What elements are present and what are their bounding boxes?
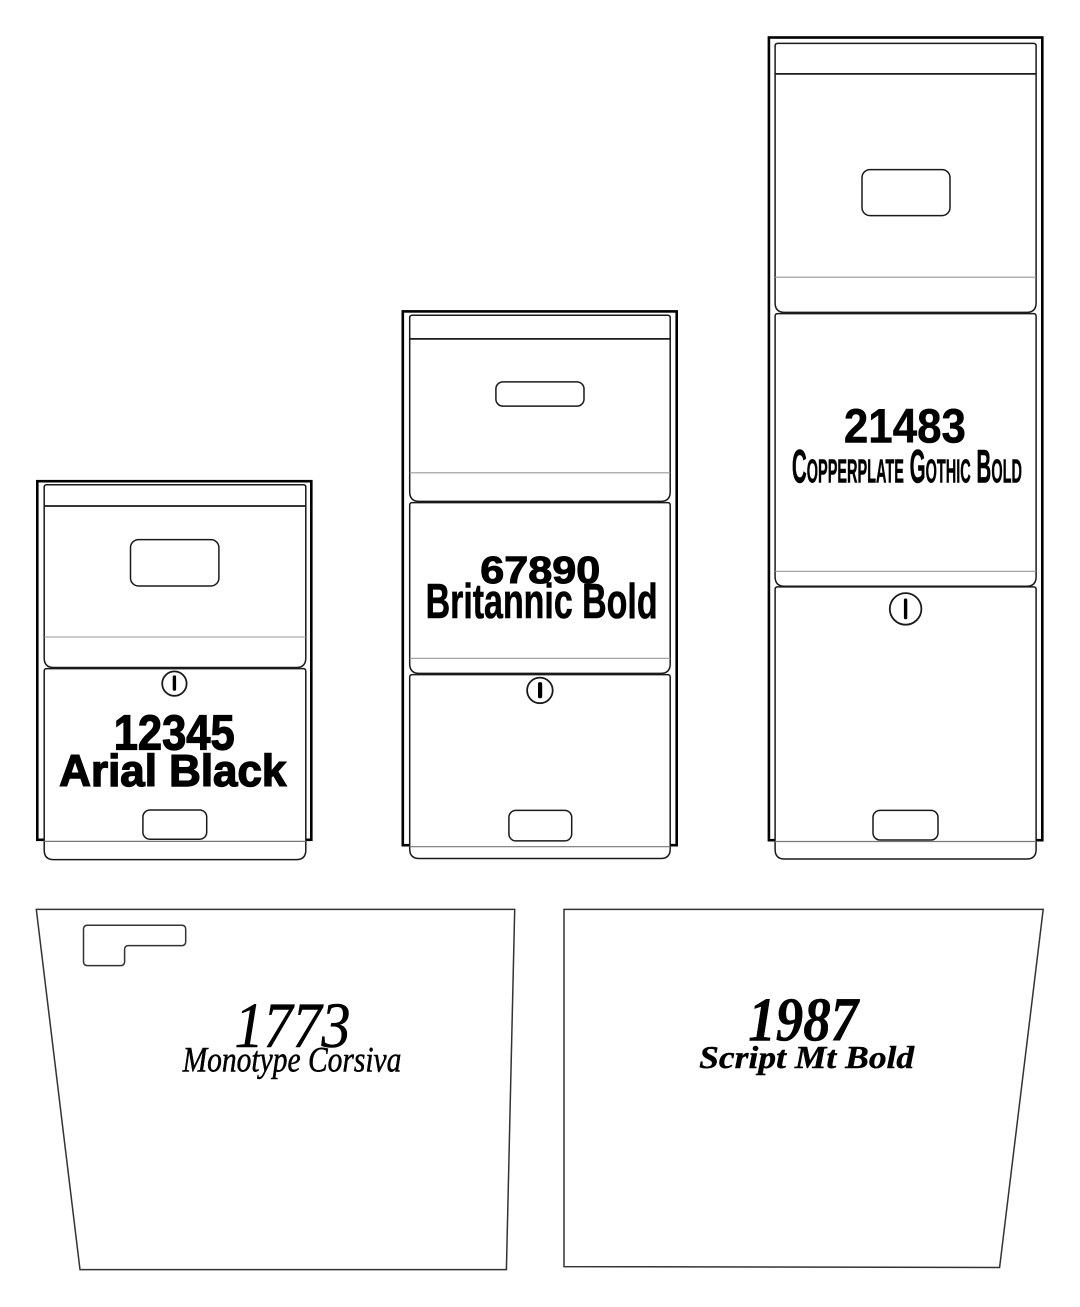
svg-text:Script Mt Bold: Script Mt Bold	[699, 1040, 915, 1075]
svg-text:Copperplate Gothic Bold: Copperplate Gothic Bold	[792, 440, 1022, 493]
svg-text:Monotype Corsiva: Monotype Corsiva	[182, 1039, 402, 1079]
svg-text:Arial Black: Arial Black	[59, 747, 286, 796]
svg-text:Britannic Bold: Britannic Bold	[426, 575, 658, 629]
